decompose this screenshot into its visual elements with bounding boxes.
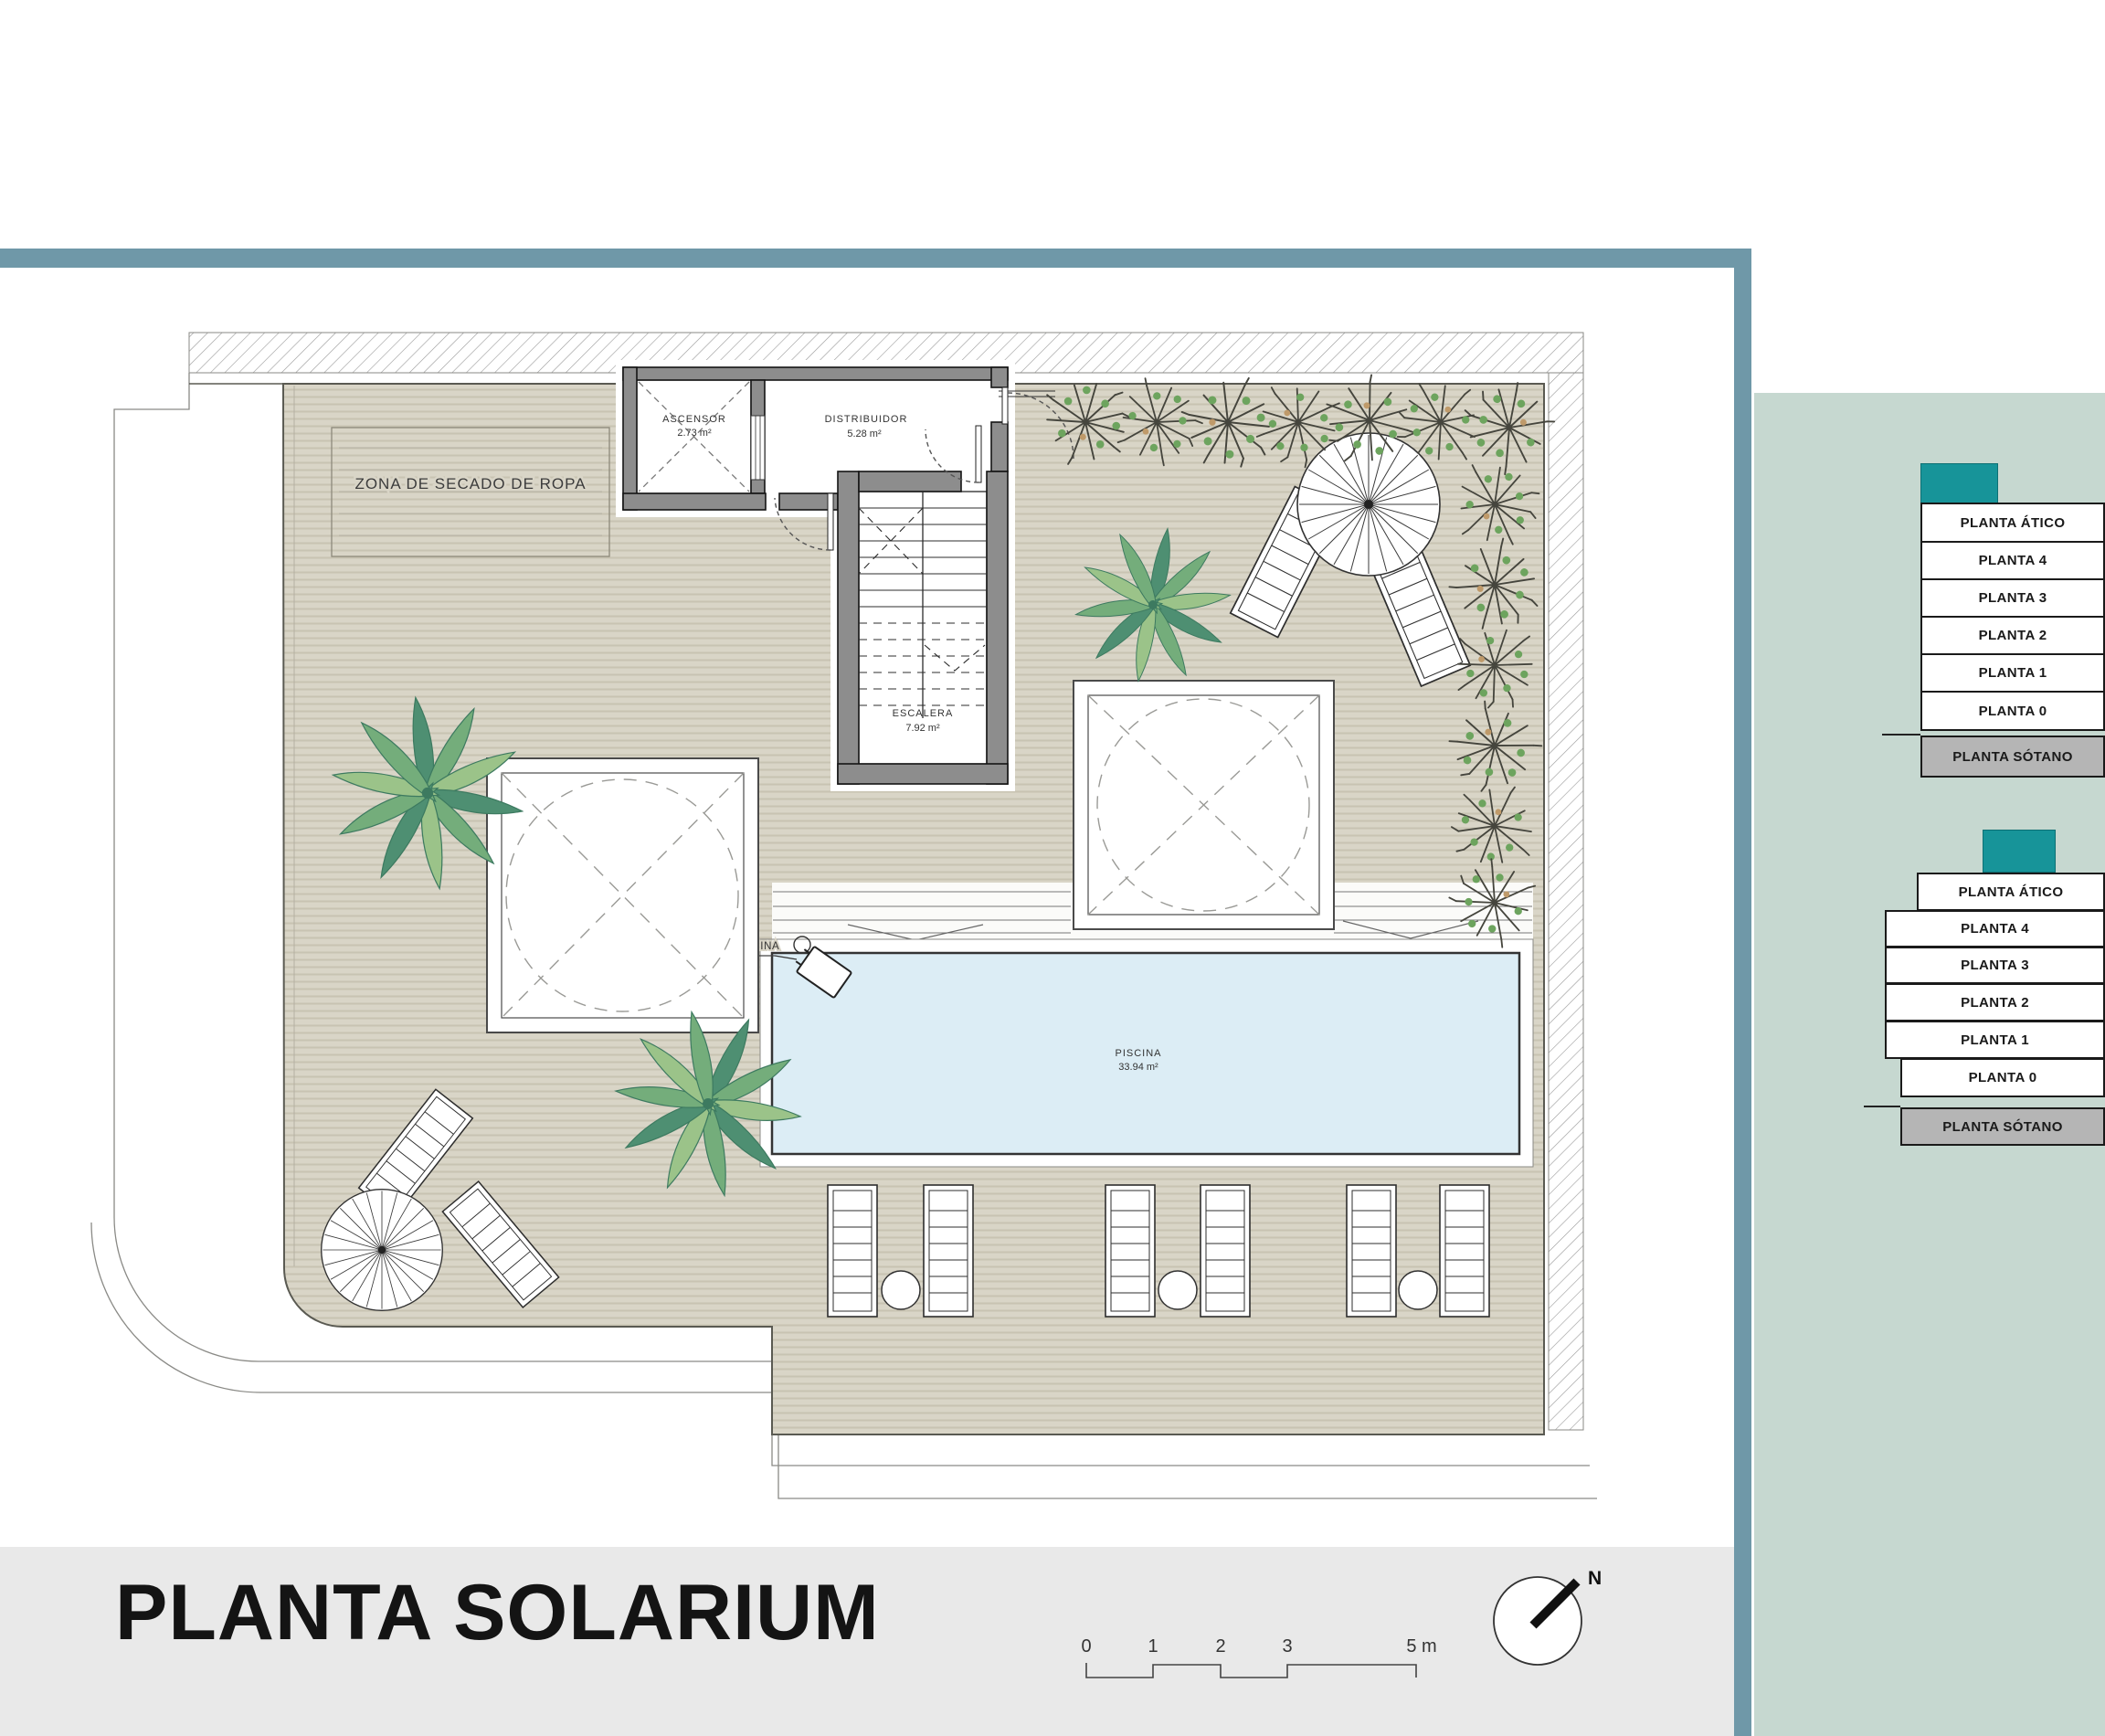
stack2-level-3[interactable]: PLANTA 3	[1885, 947, 2105, 984]
side-table	[1399, 1271, 1437, 1309]
distributor-floor	[765, 380, 991, 471]
stack1-level-4[interactable]: PLANTA 4	[1920, 541, 2105, 580]
stack2-level-atico[interactable]: PLANTA ÁTICO	[1917, 873, 2105, 911]
level-label: PLANTA 1	[1961, 1032, 2029, 1048]
floor-plan-canvas: ZONA DE SECADO DE ROPA PISCINA 33.94 m² …	[0, 0, 2105, 1736]
ground-line	[1882, 734, 1920, 736]
level-label: PLANTA 3	[1979, 590, 2047, 606]
scale-tick-3: 3	[1282, 1636, 1292, 1657]
level-label: PLANTA 4	[1979, 553, 2047, 568]
distributor-label: DISTRIBUIDOR	[825, 414, 908, 425]
pool-area-label: 33.94 m²	[1118, 1062, 1158, 1073]
stack1-level-0[interactable]: PLANTA 0	[1920, 691, 2105, 731]
frame-top-band	[0, 249, 1751, 268]
level-label: PLANTA 2	[1961, 995, 2029, 1011]
stack2-level-1[interactable]: PLANTA 1	[1885, 1021, 2105, 1059]
stack2-level-2[interactable]: PLANTA 2	[1885, 983, 2105, 1021]
level-label: PLANTA 0	[1969, 1070, 2037, 1085]
pool: PISCINA 33.94 m²	[760, 939, 1533, 1167]
stair-area-label: 7.92 m²	[905, 723, 940, 734]
scale-tick-1: 1	[1148, 1636, 1158, 1657]
stack1-level-sotano[interactable]: PLANTA SÓTANO	[1920, 736, 2105, 778]
page: ZONA DE SECADO DE ROPA PISCINA 33.94 m² …	[0, 0, 2105, 1736]
elevator-door	[751, 416, 765, 480]
stack1-highlight-solarium	[1920, 463, 1998, 504]
stack2-level-0[interactable]: PLANTA 0	[1900, 1058, 2105, 1097]
level-label: PLANTA SÓTANO	[1942, 1119, 2063, 1135]
stair-label: ESCALERA	[893, 708, 954, 719]
stack1-level-2[interactable]: PLANTA 2	[1920, 616, 2105, 655]
scale-tick-5m: 5 m	[1406, 1636, 1436, 1657]
scale-tick-0: 0	[1081, 1636, 1091, 1657]
elevator-area-label: 2.73 m²	[677, 428, 712, 439]
skylight-left	[487, 758, 758, 1032]
stack1-level-3[interactable]: PLANTA 3	[1920, 578, 2105, 618]
page-title: PLANTA SOLARIUM	[115, 1568, 880, 1658]
level-label: PLANTA ÁTICO	[1959, 884, 2064, 900]
stack2-highlight-solarium	[1983, 830, 2056, 873]
scale-tick-2: 2	[1215, 1636, 1225, 1657]
ground-line	[1864, 1106, 1900, 1107]
level-label: PLANTA ÁTICO	[1961, 515, 2066, 531]
level-label: PLANTA 2	[1979, 628, 2047, 643]
side-table	[1158, 1271, 1197, 1309]
level-label: PLANTA 1	[1979, 665, 2047, 681]
stack1-level-atico[interactable]: PLANTA ÁTICO	[1920, 503, 2105, 543]
north-label: N	[1588, 1568, 1602, 1589]
distributor-area-label: 5.28 m²	[847, 429, 882, 439]
drying-zone-label: ZONA DE SECADO DE ROPA	[354, 475, 586, 492]
level-label: PLANTA SÓTANO	[1952, 749, 2073, 765]
level-label: PLANTA 3	[1961, 958, 2029, 973]
hatch-strip-right	[1549, 373, 1583, 1430]
level-label: PLANTA 0	[1979, 704, 2047, 719]
frame-right-band	[1734, 249, 1751, 1736]
skylight-right	[1074, 681, 1334, 929]
side-table	[882, 1271, 920, 1309]
stack1-level-1[interactable]: PLANTA 1	[1920, 653, 2105, 693]
stack2-level-sotano[interactable]: PLANTA SÓTANO	[1900, 1107, 2105, 1146]
stack2-level-4[interactable]: PLANTA 4	[1885, 910, 2105, 947]
elevator-label: ASCENSOR	[662, 414, 726, 425]
level-label: PLANTA 4	[1961, 921, 2029, 937]
pool-label: PISCINA	[1115, 1048, 1161, 1059]
